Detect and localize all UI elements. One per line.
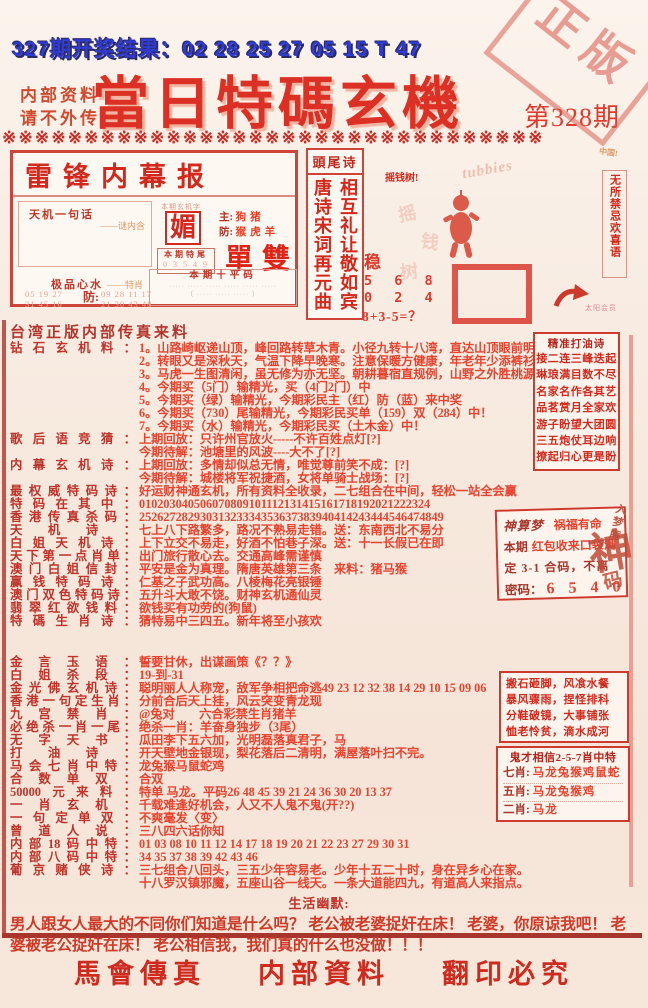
- tip-line-text: 合双: [139, 772, 163, 786]
- footer-item: 内部資料: [258, 952, 390, 991]
- tip-line-text: 五升斗大敢不饶。财神玄机通仙灵: [139, 588, 322, 602]
- tianji-label: 天机一句话: [29, 206, 94, 222]
- doggerel-poem-title: 精准打油诗: [535, 336, 618, 351]
- doggerel-line: 撩起归心更是盼: [535, 449, 618, 465]
- mystery-character-box: 媚: [165, 211, 201, 245]
- footer-item: 翻印必究: [442, 952, 574, 991]
- tip-line-text: 开天壁地金银现，梨花落后二清明，满屋落叶扫不完。: [139, 746, 432, 760]
- faint-doodle: 钱: [419, 227, 441, 256]
- main-animals: 主: 狗猪: [219, 209, 265, 224]
- head-tail-poem-title: 頭尾诗: [308, 150, 362, 175]
- tip-line-text: 2。转眼又是深秋天，气温下降早晚寒。注意保暖方健康，年老年少添裤衫。（啥）: [139, 354, 578, 368]
- footer: 馬會傳真内部資料翻印必究: [0, 952, 648, 991]
- vertical-slogan-text: 无所禁忌欢喜语: [607, 174, 623, 258]
- tip-line-text: 1。山路崎岖递山顶，峰回路转草木青。小径九转十八湾，直达山顶眼前明。（森）: [139, 341, 578, 355]
- tip-line-text: 2526272829303132333435363738394041424344…: [139, 510, 444, 524]
- zodiac-pick-row: 二肖: 马龙: [503, 802, 623, 820]
- tip-line-text: 分前合后天上挂，风云突变青龙现: [139, 694, 322, 708]
- password-label: 密码：: [505, 583, 543, 598]
- zodiac-pick-label: 五肖:: [503, 786, 530, 798]
- tip-line-text: 3。马虎一生图清闲，虽无修为亦无坚。朝耕暮宿直规例，山野之外胜桃源。（鼠）: [139, 367, 578, 381]
- tip-line-text: 01 03 08 10 11 12 14 17 18 19 20 21 22 2…: [139, 837, 410, 851]
- ten-flat-codes-label: 本期十平码: [150, 270, 296, 283]
- tip-line-text: 今期待解：池塘里的风波----大不了[?]: [139, 445, 340, 459]
- tianji-phrase-box: 天机一句话 ——谜内含: [18, 201, 152, 267]
- footer-item: 馬會傳真: [74, 952, 206, 991]
- tip-line-text: 绝杀一肖：羊奋身独步（3尾）: [139, 720, 304, 734]
- doggerel-line: 接二连三峰迭起: [535, 351, 618, 367]
- doggerel-poem-lines: 接二连三峰迭起琳琅满目数不尽名家名作各其艺品茗赏月全家欢游子盼望大团圆三五炮仗耳…: [535, 351, 618, 466]
- main-value: 狗猪: [236, 212, 265, 223]
- head-tail-poem-box: 頭尾诗 相互礼让敬如宾 唐诗宋词再元曲: [306, 148, 364, 320]
- tip-line-text: 4。今期买（5门）输精光，买（4门2门）中: [139, 380, 371, 394]
- ten-flat-codes-box: 本期十平码 ····· ····· ····· ····· ····· ····…: [149, 269, 297, 306]
- tip-line-text: 誓要甘休，出谋画策《？？》: [139, 655, 297, 669]
- leifeng-report-box: 雷锋内幕报 天机一句话 ——谜内含 本期玄机字 媚 主: 狗猪 防: 猴虎羊 單…: [10, 150, 298, 307]
- doggerel-line: 品茗赏月全家欢: [535, 400, 618, 416]
- zodiac-picks-box: 鬼才相信2-5-7肖中特 七肖: 马龙兔猴鸡鼠蛇 五肖: 马龙兔猴鸡 二肖: 马…: [496, 746, 630, 822]
- xinshui-guard-label: 防:: [83, 288, 99, 305]
- xinshui-right-numbers: 09 28 11 17 21 30 43 48: [101, 289, 152, 309]
- teletubbies-watermark: tubbies: [461, 158, 514, 184]
- humor-heading: 生活幽默:: [10, 893, 628, 912]
- zodiac-pick-value: 马龙兔猴鸡: [533, 786, 596, 798]
- tv-frame-doodle: [452, 264, 532, 324]
- tip-line-text: 6。今期买（730）尾输精光，今期彩民买单（159）双（284）中！: [139, 406, 492, 420]
- dream-oracle-title: 神算梦: [503, 518, 544, 533]
- tip-line-text: 欲钱买有功劳的(狗鼠): [139, 601, 257, 615]
- tip-line-text: 不爽毫发〈变〉: [139, 811, 224, 825]
- doggerel-line: 三五炮仗耳边响: [535, 433, 618, 449]
- steady-character: 稳: [364, 248, 381, 273]
- tip-line-text: 七上八下路繁多，路况不熟易走错。送：东南西北不易分: [139, 523, 444, 537]
- xinshui-left-numbers: 05 19 27 31 45 16: [25, 289, 63, 309]
- zodiac-pick-value: 马龙兔猴鸡鼠蛇: [533, 767, 621, 779]
- tip-line-text: 7。今期买（水）输精光，今期彩民买（土木金）中！: [139, 419, 425, 433]
- leifeng-title: 雷锋内幕报: [25, 155, 215, 194]
- tip-line-text: 聪明丽人人称宠，敌军争相把命逃49 23 12 32 38 14 29 10 1…: [139, 681, 486, 695]
- tianji-note: ——谜内含: [100, 219, 145, 232]
- idiom-lines: 搬石砸脚，风飡水餐暴风骤雨，捏怪排科分鞋破镜，大事铺张恤老怜贫，滴水成河: [506, 676, 622, 740]
- confidential-notice: 内部资料 请不外传: [20, 84, 100, 130]
- tip-line-text: 19-到-31: [139, 668, 184, 682]
- tip-line-text: 今期待解：城楼将军祝捷酒，女将单骑士战场：[?]: [139, 471, 409, 485]
- idiom-line: 恤老怜贫，滴水成河: [506, 724, 622, 740]
- vertical-slogan-box: 无所禁忌欢喜语: [602, 170, 627, 278]
- tip-line-label: 歌后语竞猜：: [10, 433, 136, 446]
- china-caption: 中国!: [598, 146, 618, 159]
- hint-number-row-1: 5 6 8: [364, 273, 440, 289]
- teletubby-figure: [441, 190, 481, 265]
- tip-line-text: 上期回放：多情却似总无情，唯觉尊前笑不成：[?]: [139, 458, 409, 472]
- idiom-box: 搬石砸脚，风飡水餐暴风骤雨，捏怪排科分鞋破镜，大事铺张恤老怜贫，滴水成河: [499, 671, 629, 743]
- zodiac-picks-title: 鬼才相信2-5-7肖中特: [503, 749, 623, 765]
- tip-line-text: 5。今期买（绿）输精光，今期彩民主（红）防（蓝）来中奖: [139, 393, 462, 407]
- tip-line-text: 猜特易中三四五。新年将至小孩欢: [139, 614, 322, 628]
- doggerel-line: 游子盼望大团圆: [535, 417, 618, 433]
- doggerel-line: 名家名作各其艺: [535, 384, 618, 400]
- zodiac-pick-row: 五肖: 马龙兔猴鸡: [503, 784, 623, 803]
- member-caption: 太阳会员: [585, 303, 617, 313]
- tip-line-label: 特碼生肖诗：: [10, 615, 136, 628]
- dream-line-prefix: 本期: [504, 540, 528, 555]
- tip-line-text: 0102030405060708091011121314151617181920…: [139, 497, 430, 511]
- tip-line-text: 上下立交不易走，好酒不怕巷子深。送：十一长假已在即: [139, 536, 444, 550]
- hint-number-row-2: 0 2 4: [364, 290, 440, 306]
- tip-line-text: 十八罗汉镇邪魔，五座山谷一线天。一条大道能四九，有道高人来指点。: [139, 876, 529, 890]
- tip-line-text: 好运财神通玄机，所有资料全收录，二七组合在中间，轻松一站全会赢: [139, 484, 517, 498]
- divider-line: [13, 195, 295, 197]
- tip-line-text: @兔对 六合彩禁生肖猪羊: [139, 707, 297, 721]
- page-border-left: [2, 320, 6, 936]
- tip-line-label: 葡京赌侠诗：: [10, 864, 136, 877]
- tip-line-text: 瓜田李下五六加，光明磊落真君子，马: [139, 733, 346, 747]
- tip-line-text: 三七组合八回头，三五少年容易老。少年十五二十时，身在异乡心在家。: [139, 863, 529, 877]
- tip-line-text: 千载难逢好机会，人又不人鬼不鬼(开??): [139, 798, 354, 812]
- zodiac-pick-row: 七肖: 马龙兔猴鸡鼠蛇: [503, 765, 623, 784]
- tip-line-text: 仁基之子武功高。八棱梅花亮银锤: [139, 575, 322, 589]
- zodiac-picks-rows: 七肖: 马龙兔猴鸡鼠蛇 五肖: 马龙兔猴鸡 二肖: 马龙: [503, 765, 623, 820]
- tip-line-text: 龙兔猴马鼠蛇鸡: [139, 759, 224, 773]
- tip-line-text: 三八四六话你知: [139, 824, 224, 838]
- zodiac-pick-label: 七肖:: [503, 767, 530, 779]
- doggerel-line: 琳琅满目数不尽: [535, 367, 618, 383]
- tip-line-text: 特单 马龙。平码26 48 45 39 21 24 36 30 20 13 37: [139, 785, 392, 799]
- faint-doodle: 摇: [395, 198, 418, 227]
- tip-line-label: 钻石玄机料：: [10, 342, 136, 355]
- faint-text-line: （ ····· ····· ····· ）: [150, 291, 296, 299]
- tip-line-label: 内幕玄机诗：: [10, 459, 136, 472]
- divider-ornament: ※※※※※※※※※※※※※※※※※※※※※※※※※※※※※※※※※: [2, 128, 648, 148]
- tip-line: 十八罗汉镇邪魔，五座山谷一线天。一条大道能四九，有道高人来指点。: [10, 877, 628, 890]
- doggerel-poem-box: 精准打油诗 接二连三峰迭起琳琅满目数不尽名家名作各其艺品茗赏月全家欢游子盼望大团…: [533, 332, 620, 471]
- zodiac-pick-label: 二肖:: [503, 804, 530, 816]
- zodiac-pick-value: 马龙: [533, 804, 558, 816]
- main-label: 主:: [219, 212, 233, 223]
- poem-column-right: 相互礼让敬如宾: [335, 178, 361, 320]
- idiom-line: 暴风骤雨，捏怪排科: [506, 692, 622, 708]
- tip-line: 特碼生肖诗：猜特易中三四五。新年将至小孩欢: [10, 615, 628, 628]
- idiom-line: 搬石砸脚，风飡水餐: [506, 676, 622, 692]
- idiom-line: 分鞋破镜，大事铺张: [506, 708, 622, 724]
- tip-line-text: 出门旅行散心去。交通高峰需谨慎: [139, 549, 322, 563]
- faint-text-line: ····· ····· ····· ····· ····· ·····: [150, 283, 296, 291]
- tip-line-text: 上期回放：只许州官放火-----不许百姓点灯[?]: [139, 432, 381, 446]
- tip-line-text: 平安是金为真理。隋唐英雄第三条 来料：猪马猴: [139, 562, 407, 576]
- special-tail-digits: 0 3 5 4 9: [158, 260, 214, 269]
- lottery-sheet-page: { "page": { "result_line": "327期开奖结果：02 …: [0, 0, 648, 1008]
- money-tree-caption: 摇钱树!: [385, 169, 418, 184]
- poem-column-left: 唐诗宋词再元曲: [309, 178, 335, 320]
- humor-paragraph: 男人跟女人最大的不同你们知道是什么吗？ 老公被老婆捉奸在床！ 老婆，你原谅我吧！…: [10, 914, 628, 956]
- tip-line-text: 34 35 37 38 39 42 43 46: [139, 850, 258, 864]
- head-tail-poem-lines: 相互礼让敬如宾 唐诗宋词再元曲: [309, 178, 361, 320]
- special-tail-label: 本期特尾: [158, 249, 214, 260]
